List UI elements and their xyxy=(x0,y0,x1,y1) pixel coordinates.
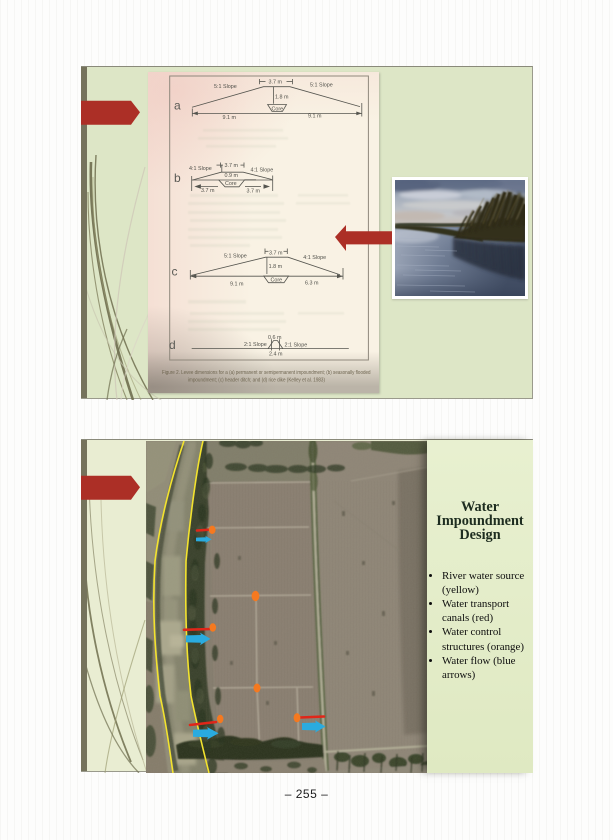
svg-text:9.1 m: 9.1 m xyxy=(308,114,322,120)
svg-text:4:1 Slope: 4:1 Slope xyxy=(189,166,212,172)
svg-text:3.7 m: 3.7 m xyxy=(225,163,239,169)
svg-text:Core: Core xyxy=(225,181,237,187)
svg-text:1.8 m: 1.8 m xyxy=(269,264,283,270)
svg-text:Figure 2. Levee dimensions f: Figure 2. Levee dimensions for a (a) per… xyxy=(162,370,371,376)
svg-text:1.8 m: 1.8 m xyxy=(275,95,289,101)
svg-text:2:1 Slope: 2:1 Slope xyxy=(244,342,267,348)
svg-text:2.4 m: 2.4 m xyxy=(269,351,283,357)
svg-text:4:1 Slope: 4:1 Slope xyxy=(251,168,274,174)
svg-text:9.1 m: 9.1 m xyxy=(223,115,237,121)
svg-text:6.3 m: 6.3 m xyxy=(305,281,319,287)
svg-text:b: b xyxy=(174,171,181,185)
svg-text:2:1 Slope: 2:1 Slope xyxy=(285,343,308,349)
svg-text:3.7 m: 3.7 m xyxy=(201,188,215,194)
svg-text:3.7 m: 3.7 m xyxy=(247,188,261,194)
svg-text:9.1 m: 9.1 m xyxy=(230,281,244,287)
svg-text:c: c xyxy=(172,265,178,279)
svg-text:Core: Core xyxy=(272,106,284,112)
svg-text:Core: Core xyxy=(271,277,283,283)
svg-text:3.7 m: 3.7 m xyxy=(269,250,283,256)
svg-text:3.7 m: 3.7 m xyxy=(269,79,283,85)
svg-text:4:1 Slope: 4:1 Slope xyxy=(303,255,326,261)
svg-text:d: d xyxy=(169,338,176,352)
svg-text:5:1 Slope: 5:1 Slope xyxy=(310,83,333,89)
svg-text:a: a xyxy=(174,99,181,113)
svg-text:5:1 Slope: 5:1 Slope xyxy=(214,84,237,90)
svg-text:0.6 m: 0.6 m xyxy=(268,335,282,341)
svg-text:impoundment; (c) header ditch;: impoundment; (c) header ditch; and (d) r… xyxy=(188,378,325,384)
svg-text:5:1 Slope: 5:1 Slope xyxy=(224,254,247,260)
svg-text:0.9 m: 0.9 m xyxy=(225,173,239,179)
